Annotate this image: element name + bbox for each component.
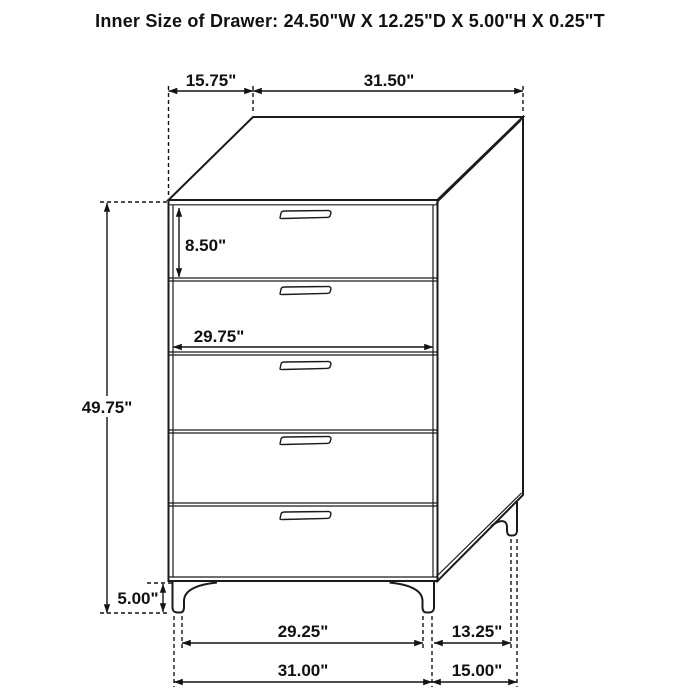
drawer-dividers bbox=[169, 278, 438, 506]
drawer-1-handle bbox=[280, 210, 331, 218]
dim-label-base-depth: 15.00" bbox=[452, 661, 503, 680]
drawer-5-handle bbox=[280, 511, 331, 519]
drawer-2-handle bbox=[280, 286, 331, 294]
dim-label-foot-span-width: 29.25" bbox=[278, 622, 329, 641]
dim-label-top-depth: 15.75" bbox=[186, 71, 237, 90]
drawer-handles bbox=[280, 210, 331, 519]
chest-dimension-diagram: 15.75" 31.50" 8.50" 29.75" 49.75" 5.00" … bbox=[0, 0, 700, 700]
dim-label-foot-span-depth: 13.25" bbox=[452, 622, 503, 641]
dimension-diagram-page: Inner Size of Drawer: 24.50"W X 12.25"D … bbox=[0, 0, 700, 700]
dim-label-base-width: 31.00" bbox=[278, 661, 329, 680]
chest-side-panel bbox=[438, 117, 524, 581]
dimension-labels: 15.75" 31.50" 8.50" 29.75" 49.75" 5.00" … bbox=[82, 71, 503, 680]
dim-label-top-width: 31.50" bbox=[364, 71, 415, 90]
drawer-4-handle bbox=[280, 436, 331, 444]
front-right-leg bbox=[390, 581, 435, 613]
chest-outline bbox=[169, 117, 524, 613]
dim-label-drawer-height: 8.50" bbox=[185, 236, 226, 255]
chest-top-surface bbox=[169, 117, 524, 200]
dim-label-overall-height: 49.75" bbox=[82, 398, 133, 417]
drawer-3-handle bbox=[280, 361, 331, 369]
chest-front-face bbox=[169, 200, 438, 581]
front-left-leg bbox=[173, 581, 218, 613]
top-edge-thickness-line bbox=[436, 121, 521, 204]
dim-label-leg-height: 5.00" bbox=[117, 589, 158, 608]
dim-label-drawer-width: 29.75" bbox=[194, 327, 245, 346]
chest-legs bbox=[173, 502, 518, 613]
